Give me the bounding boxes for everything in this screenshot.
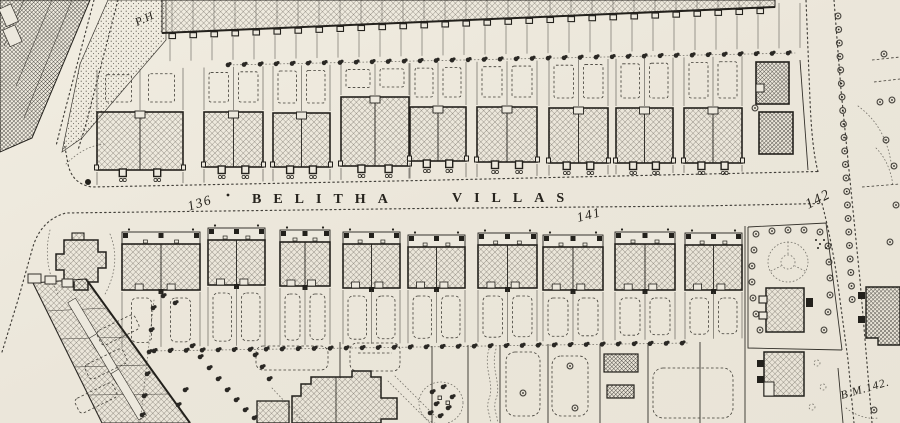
terrace-outbuilding (190, 33, 197, 38)
gate-post (667, 228, 669, 230)
tree-canopy (170, 348, 173, 351)
tree-trunk (893, 165, 895, 167)
front-porch (423, 160, 430, 168)
porch-pier (571, 236, 576, 241)
tree-trunk (889, 241, 891, 243)
tree-canopy (634, 341, 637, 344)
side-wall (95, 165, 99, 170)
tree-canopy (484, 57, 487, 60)
shrub-dot (819, 243, 821, 245)
tree-canopy (149, 349, 152, 352)
tree-canopy (372, 59, 375, 62)
side-wall (465, 156, 469, 161)
tree-canopy (394, 345, 397, 348)
tree-trunk (842, 110, 844, 112)
tree-canopy (644, 53, 647, 56)
building-notch (756, 84, 764, 92)
porch-pier (544, 236, 549, 241)
tree-canopy (772, 51, 775, 54)
tree-trunk (885, 139, 887, 141)
tree-canopy (154, 348, 157, 351)
tree-canopy (244, 62, 247, 65)
tree-trunk (569, 365, 571, 367)
porch-pier (259, 229, 264, 234)
rear-recess (511, 282, 519, 288)
tree-canopy (330, 345, 333, 348)
tree-canopy (432, 389, 435, 392)
front-porch (385, 165, 392, 173)
front-porch (242, 166, 249, 174)
rear-recess (552, 284, 560, 290)
porch-pier (303, 231, 308, 236)
terrace-outbuilding (547, 18, 554, 23)
tree-canopy (292, 61, 295, 64)
terrace-outbuilding (694, 11, 701, 16)
side-wall (271, 162, 275, 167)
terrace-outbuilding (757, 9, 764, 14)
terrace-outbuilding (505, 19, 512, 24)
tree-canopy (410, 344, 413, 347)
terrace-outbuilding (421, 23, 428, 28)
tree-canopy (153, 305, 156, 308)
tree-canopy (548, 55, 551, 58)
tree-canopy (580, 55, 583, 58)
building (257, 401, 289, 423)
tree-canopy (458, 344, 461, 347)
tree-trunk (883, 53, 885, 55)
tree-canopy (234, 347, 237, 350)
tree-canopy (602, 342, 605, 345)
side-wall (408, 156, 412, 161)
tree-canopy (262, 364, 265, 367)
outbuilding (858, 316, 865, 323)
tree-trunk (574, 407, 576, 409)
tree-canopy (596, 54, 599, 57)
porch-pier (344, 233, 349, 238)
rear-recess (217, 279, 225, 285)
rear-recess (308, 280, 316, 286)
tree-canopy (314, 346, 317, 349)
tree-canopy (362, 345, 365, 348)
tree-trunk (838, 42, 840, 44)
rear-extension (502, 106, 512, 113)
building-notch (764, 382, 774, 396)
garden-building (766, 288, 804, 332)
tree-trunk (753, 249, 755, 251)
tree-canopy (436, 401, 439, 404)
rear-recess (440, 282, 448, 288)
tree-canopy (186, 348, 189, 351)
tree-trunk (873, 409, 875, 411)
tree-canopy (564, 55, 567, 58)
porch-pier (281, 231, 286, 236)
tree-canopy (452, 394, 455, 397)
gate-post (691, 229, 693, 231)
tree-trunk (823, 329, 825, 331)
tree-trunk (845, 164, 847, 166)
front-porch (218, 166, 225, 174)
porch-pier (369, 233, 374, 238)
rear-recess (717, 284, 725, 290)
front-porch (287, 166, 294, 174)
tree-trunk (838, 29, 840, 31)
tree-canopy (426, 344, 429, 347)
tree-trunk (803, 229, 805, 231)
tree-canopy (724, 52, 727, 55)
rear-recess (375, 282, 383, 288)
tree-trunk (752, 297, 754, 299)
shrub-dot (823, 239, 825, 241)
front-porch (446, 160, 453, 168)
entrance-step (143, 240, 147, 243)
tree-canopy (516, 56, 519, 59)
entrance-step (313, 238, 317, 241)
tree-canopy (442, 344, 445, 347)
rear-recess (694, 284, 702, 290)
terrace-outbuilding (463, 21, 470, 26)
terrace-outbuilding (358, 26, 365, 31)
tree-canopy (308, 60, 311, 63)
tree-canopy (682, 340, 685, 343)
outbuilding (28, 274, 41, 283)
side-wall (741, 158, 745, 163)
terrace-outbuilding (568, 17, 575, 22)
tree-canopy (436, 58, 439, 61)
tree-trunk (751, 265, 753, 267)
rear-recess (240, 279, 248, 285)
tree-canopy (227, 387, 230, 390)
tree-trunk (787, 229, 789, 231)
map-canvas: P.H 136 BELITHA VILLAS 141 142 B.M.142. (0, 0, 900, 423)
tree-trunk (827, 311, 829, 313)
terrace-outbuilding (253, 30, 260, 35)
tree-canopy (430, 410, 433, 413)
tree-trunk (755, 233, 757, 235)
porch-pier (479, 234, 484, 239)
porch (759, 296, 767, 303)
tree-canopy (660, 53, 663, 56)
gate-post (457, 231, 459, 233)
entrance-step (700, 241, 704, 244)
tree-canopy (538, 342, 541, 345)
tree-canopy (324, 60, 327, 63)
tree-canopy (612, 54, 615, 57)
rear-extension (297, 112, 307, 119)
terrace-outbuilding (589, 16, 596, 21)
side-wall (682, 158, 686, 163)
tree-canopy (144, 393, 147, 396)
front-porch (721, 162, 728, 170)
tree-canopy (192, 343, 195, 346)
tree-trunk (759, 329, 761, 331)
rear-recess (287, 280, 295, 286)
side-wall (536, 157, 540, 162)
gate-post (734, 229, 736, 231)
porch-pier (459, 236, 464, 241)
entrance-step (723, 241, 727, 244)
rear-extension (433, 106, 443, 113)
entrance-step (246, 236, 250, 239)
tree-trunk (751, 281, 753, 283)
gate-post (192, 228, 194, 230)
entrance-step (293, 238, 297, 241)
gate-post (286, 226, 288, 228)
tree-trunk (846, 191, 848, 193)
rear-recess (167, 284, 175, 290)
side-wall (547, 158, 551, 163)
street-name-villas: VILLAS (452, 191, 576, 206)
rear-recess (624, 284, 632, 290)
rear-recess (649, 284, 657, 290)
terrace-outbuilding (673, 12, 680, 17)
outbuilding (604, 354, 638, 372)
tree-canopy (420, 58, 423, 61)
tree-trunk (847, 218, 849, 220)
side-wall (672, 158, 676, 163)
outbuilding (757, 360, 764, 367)
gate-post (257, 224, 259, 226)
tree-canopy (388, 59, 391, 62)
tree-canopy (468, 57, 471, 60)
porch-pier (505, 234, 510, 239)
building (866, 287, 900, 345)
entrance-step (175, 240, 179, 243)
rear-extension (135, 111, 145, 118)
entrance-step (655, 240, 659, 243)
tree-canopy (298, 346, 301, 349)
front-porch (563, 162, 570, 170)
tree-canopy (200, 354, 203, 357)
tree-trunk (849, 245, 851, 247)
porch-pier (409, 236, 414, 241)
gate-post (621, 228, 623, 230)
front-porch (652, 162, 659, 170)
front-porch (309, 166, 316, 174)
tree-trunk (837, 15, 839, 17)
tree-canopy (228, 62, 231, 65)
tree-canopy (452, 57, 455, 60)
tree-canopy (740, 51, 743, 54)
entrance-step (223, 236, 227, 239)
rear-recess (417, 282, 425, 288)
front-porch (358, 165, 365, 173)
tree-canopy (506, 343, 509, 346)
shrub-dot (815, 239, 817, 241)
tree-trunk (827, 245, 829, 247)
shrub-dot (825, 247, 827, 249)
entrance-step (517, 241, 521, 244)
porch-pier (736, 234, 741, 239)
outbuilding (607, 385, 634, 398)
terrace-outbuilding (442, 22, 449, 27)
tree-canopy (708, 52, 711, 55)
end-house-block (759, 112, 793, 154)
rear-recess (135, 284, 143, 290)
tree-canopy (448, 405, 451, 408)
tree-trunk (522, 392, 524, 394)
front-porch (630, 162, 637, 170)
tree-canopy (236, 397, 239, 400)
outbuilding (62, 279, 73, 287)
tree-canopy (586, 342, 589, 345)
tree-canopy (404, 58, 407, 61)
end-house-block (756, 62, 789, 104)
gate-post (214, 224, 216, 226)
tree-canopy (756, 51, 759, 54)
side-wall (607, 158, 611, 163)
tree-trunk (829, 277, 831, 279)
entrance-step (494, 241, 498, 244)
tree-trunk (840, 69, 842, 71)
side-wall (182, 165, 186, 170)
entrance-step (559, 243, 563, 246)
tree-canopy (346, 345, 349, 348)
terrace-outbuilding (169, 34, 176, 39)
tree-trunk (771, 230, 773, 232)
rear-extension (370, 96, 380, 103)
tree-trunk (845, 177, 847, 179)
rear-recess (577, 284, 585, 290)
front-porch (516, 161, 523, 169)
tree-canopy (378, 345, 381, 348)
terrace-outbuilding (274, 29, 281, 34)
terrace-outbuilding (736, 9, 743, 14)
tree-canopy (163, 293, 166, 296)
porch (759, 312, 767, 319)
tree-canopy (356, 59, 359, 62)
gate-post (392, 228, 394, 230)
porch-pier (234, 229, 239, 234)
tree-trunk (851, 299, 853, 301)
terrace-outbuilding (316, 27, 323, 32)
side-wall (475, 157, 479, 162)
tree-canopy (628, 54, 631, 57)
front-porch (119, 169, 126, 177)
tree-trunk (851, 285, 853, 287)
terrace-outbuilding (652, 13, 659, 18)
tree-canopy (260, 61, 263, 64)
outbuilding (757, 376, 764, 383)
outbuilding (858, 292, 865, 299)
porch-pier (531, 234, 536, 239)
tree-trunk (829, 294, 831, 296)
map-viewport: P.H 136 BELITHA VILLAS 141 142 B.M.142. (0, 0, 900, 423)
tree-canopy (282, 346, 285, 349)
tree-canopy (522, 343, 525, 346)
porch-pier (159, 233, 164, 238)
tree-canopy (666, 341, 669, 344)
tree-trunk (819, 231, 821, 233)
corner-post (85, 179, 91, 185)
gate-post (322, 226, 324, 228)
porch-pier (669, 233, 674, 238)
terrace-outbuilding (337, 26, 344, 31)
entrance-step (583, 243, 587, 246)
gate-post (595, 231, 597, 233)
gate-post (529, 229, 531, 231)
tree-canopy (254, 415, 257, 418)
terrace-outbuilding (232, 31, 239, 36)
tree-trunk (754, 107, 756, 109)
tree-canopy (175, 300, 178, 303)
tree-canopy (443, 384, 446, 387)
tree-trunk (755, 313, 757, 315)
terrace-outbuilding (211, 32, 218, 37)
tree-canopy (142, 412, 145, 415)
side-wall (329, 162, 333, 167)
tree-canopy (490, 343, 493, 346)
tree-canopy (202, 347, 205, 350)
tree-canopy (218, 376, 221, 379)
rear-recess (487, 282, 495, 288)
tree-trunk (879, 101, 881, 103)
tree-trunk (895, 204, 897, 206)
terrace-outbuilding (631, 14, 638, 19)
porch-pier (209, 229, 214, 234)
side-wall (339, 161, 343, 166)
terrace-outbuilding (484, 20, 491, 25)
porch-pier (394, 233, 399, 238)
porch-pier (597, 236, 602, 241)
tree-canopy (554, 342, 557, 345)
tree-canopy (245, 407, 248, 410)
tree-canopy (276, 61, 279, 64)
tree-trunk (891, 99, 893, 101)
entrance-step (358, 240, 362, 243)
gate-post (549, 231, 551, 233)
tree-canopy (250, 347, 253, 350)
tree-canopy (692, 52, 695, 55)
tree-trunk (850, 272, 852, 274)
tree-canopy (269, 376, 272, 379)
side-wall (614, 158, 618, 163)
gate-post (128, 228, 130, 230)
terrace-outbuilding (610, 15, 617, 20)
villa-porch (72, 233, 84, 240)
rear-extension (229, 111, 239, 118)
porch-pier (711, 234, 716, 239)
tree-trunk (843, 123, 845, 125)
tree-canopy (474, 343, 477, 346)
porch-pier (434, 236, 439, 241)
side-wall (262, 162, 266, 167)
terrace-outbuilding (715, 10, 722, 15)
tree-canopy (151, 327, 154, 330)
porch-pier (616, 233, 621, 238)
front-porch (587, 162, 594, 170)
terrace-outbuilding (295, 28, 302, 33)
tree-canopy (788, 50, 791, 53)
entrance-step (381, 240, 385, 243)
tree-canopy (440, 413, 443, 416)
gate-post (484, 229, 486, 231)
tree-canopy (618, 341, 621, 344)
gate-post (414, 231, 416, 233)
tree-canopy (532, 56, 535, 59)
tree-canopy (218, 347, 221, 350)
entrance-step (631, 240, 635, 243)
front-porch (492, 161, 499, 169)
tree-canopy (570, 342, 573, 345)
porch-pier (324, 231, 329, 236)
tree-trunk (848, 231, 850, 233)
porch-pier (686, 234, 691, 239)
tree-canopy (340, 60, 343, 63)
rear-recess (352, 282, 360, 288)
tree-trunk (828, 261, 830, 263)
street-name-belitha: BELITHA (252, 192, 400, 207)
rear-extension (574, 107, 584, 114)
